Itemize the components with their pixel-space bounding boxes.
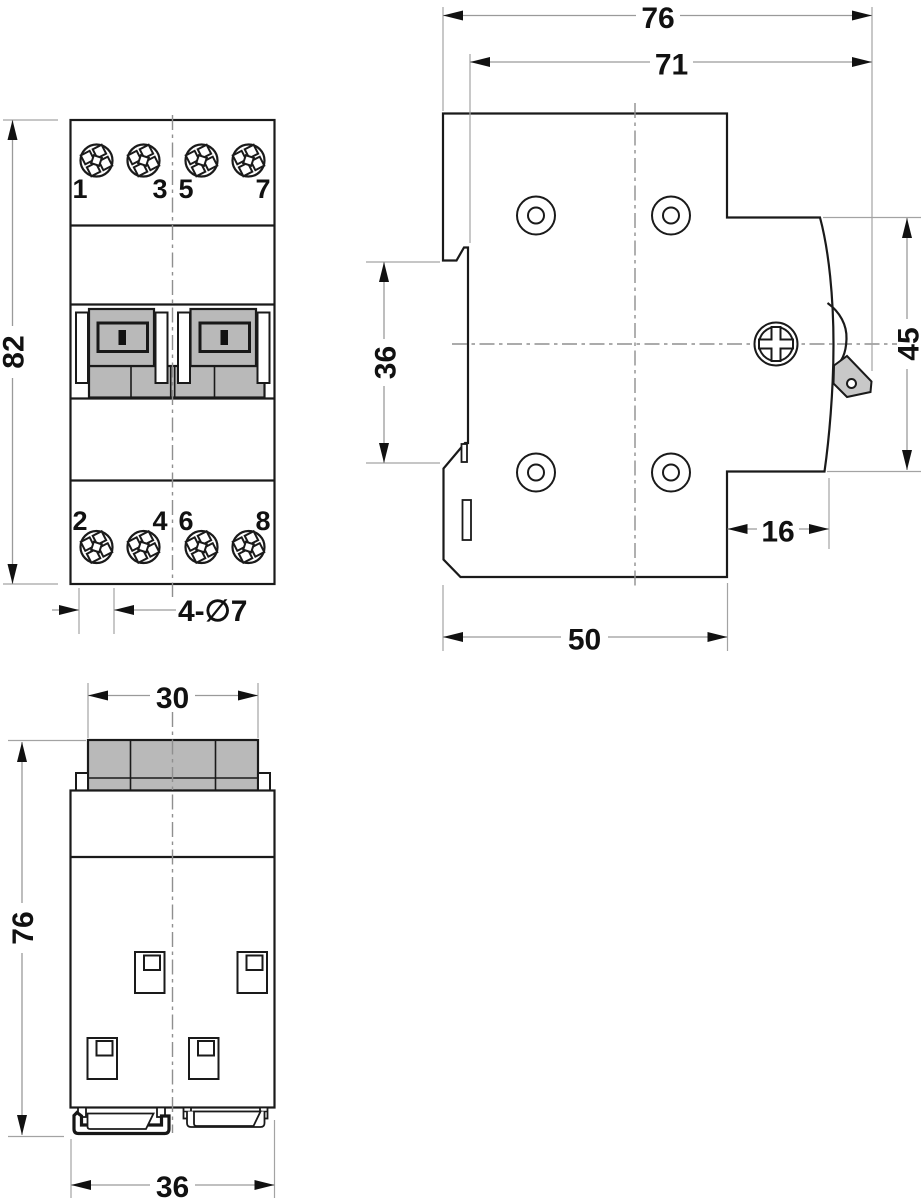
terminal-label-6: 6 (178, 506, 193, 536)
side-tab-right (258, 773, 270, 791)
switch-base-bar (89, 366, 265, 398)
terminal-label-8: 8 (255, 506, 270, 536)
dim-16: 16 (728, 478, 830, 549)
din-foot-right (184, 1108, 269, 1128)
dim-82-label: 82 (0, 335, 31, 368)
terminal-opening (189, 1038, 219, 1079)
dim-50: 50 (443, 583, 728, 657)
front-view: 1 3 5 7 2 4 6 8 82 4-∅7 (0, 115, 275, 634)
rivet-hole (652, 197, 690, 235)
terminal-opening (88, 1038, 118, 1079)
phillips-screw (755, 323, 798, 366)
drawing-sheet: 1 3 5 7 2 4 6 8 82 4-∅7 (0, 0, 923, 1200)
dim-16-label: 16 (761, 516, 794, 549)
lever-tab (834, 356, 872, 397)
technical-drawing-canvas: 1 3 5 7 2 4 6 8 82 4-∅7 (0, 0, 923, 1200)
dim-50-label: 50 (568, 624, 601, 657)
dim-36-side-label: 36 (370, 346, 403, 379)
terminal-label-3: 3 (152, 174, 167, 204)
switch-rail-2 (156, 313, 168, 384)
lever-tab-hole (847, 379, 856, 388)
side-view: 76 71 36 45 16 (366, 2, 923, 657)
rivet-hole (517, 454, 555, 492)
foot-slider (194, 1112, 261, 1127)
handle-slot-left (119, 330, 127, 345)
rivet-hole (517, 197, 555, 235)
dim-45-label: 45 (893, 327, 923, 360)
dim-71-label: 71 (655, 49, 688, 82)
dim-76-bottom-label: 76 (7, 911, 40, 944)
dim-holes-label: 4-∅7 (178, 595, 248, 628)
switch-rail-1 (76, 313, 88, 384)
bottom-view: 30 76 36 (7, 682, 275, 1200)
terminal-label-5: 5 (178, 174, 193, 204)
dim-36-bottom-label: 36 (156, 1171, 189, 1200)
terminal-label-1: 1 (72, 174, 87, 204)
switch-rail-3 (178, 313, 190, 384)
foot-slider (88, 1114, 154, 1130)
terminal-opening (238, 952, 268, 993)
handle-slot-right (221, 330, 229, 345)
din-clip-slot (463, 500, 472, 540)
dim-76-label: 76 (641, 2, 674, 35)
terminal-label-7: 7 (255, 174, 270, 204)
side-tab-left (76, 773, 88, 791)
din-clip-hook (462, 444, 468, 462)
dim-holes: 4-∅7 (52, 588, 248, 634)
dim-82: 82 (0, 120, 58, 584)
dim-30: 30 (88, 682, 258, 738)
terminal-label-4: 4 (152, 506, 167, 536)
terminal-label-2: 2 (72, 506, 87, 536)
rivet-hole (652, 454, 690, 492)
switch-rail-4 (258, 313, 270, 384)
dim-30-label: 30 (156, 682, 189, 715)
terminal-opening (135, 952, 165, 993)
dim-36-side: 36 (366, 262, 440, 463)
din-foot-left (74, 1108, 169, 1134)
